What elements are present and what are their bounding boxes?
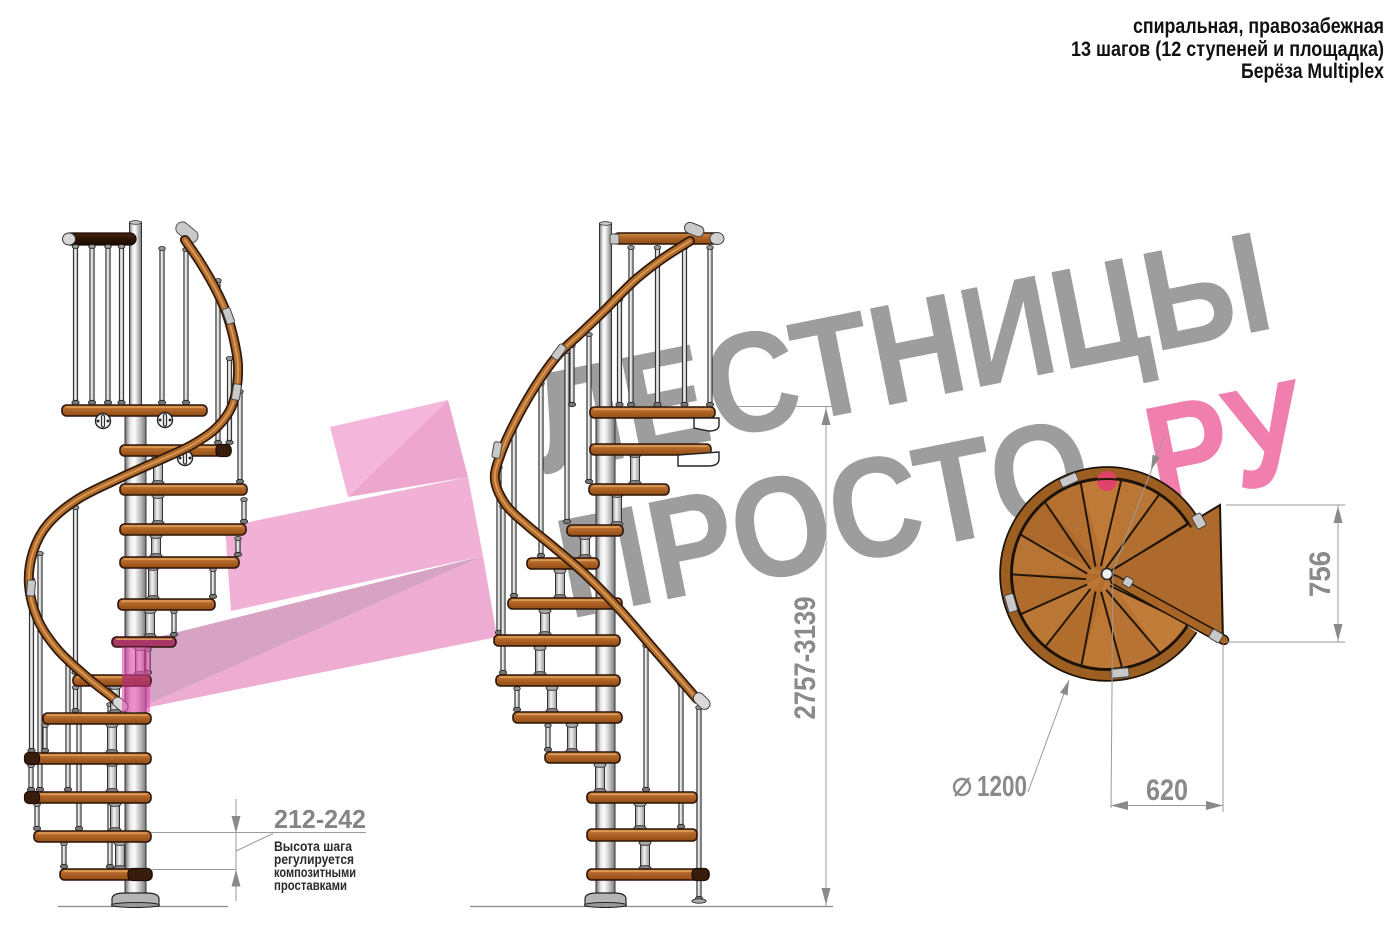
svg-text:Берёза Multiplex: Берёза Multiplex [1241,60,1384,83]
svg-text:212-242: 212-242 [274,804,366,834]
svg-text:756: 756 [1304,551,1337,597]
svg-text:2757-3139: 2757-3139 [789,597,822,720]
svg-text:620: 620 [1146,774,1188,807]
svg-text:проставками: проставками [274,877,347,893]
svg-text:спиральная, правозабежная: спиральная, правозабежная [1133,15,1384,38]
svg-text:13 шагов (12 ступеней и площад: 13 шагов (12 ступеней и площадка) [1071,38,1384,61]
svg-text:1200: 1200 [977,771,1027,803]
